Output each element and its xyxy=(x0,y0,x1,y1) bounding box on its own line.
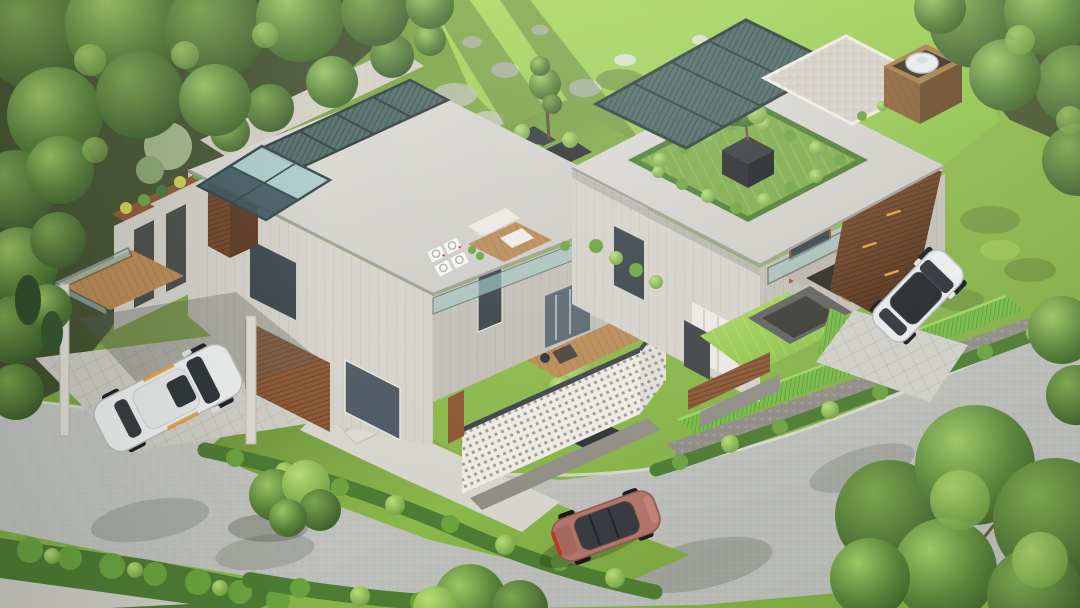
architectural-render: Aerial 3D architectural rendering of two… xyxy=(0,0,1080,608)
aerial-villa-scene: Aerial 3D architectural rendering of two… xyxy=(0,0,1080,608)
edge-vignette xyxy=(0,0,1080,608)
